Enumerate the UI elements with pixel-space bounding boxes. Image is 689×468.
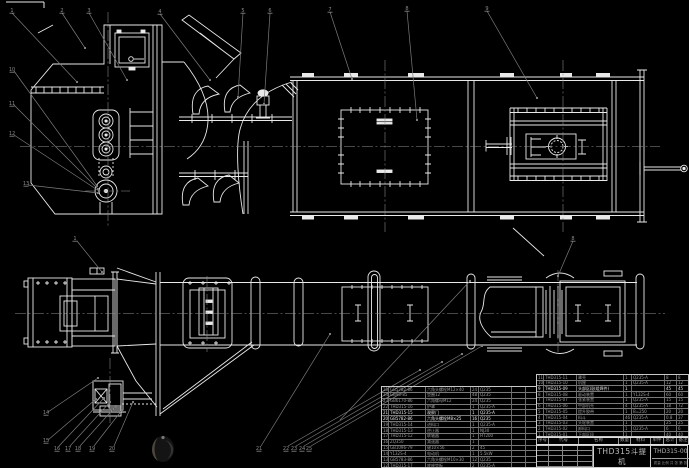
balloon-base [44,415,49,416]
elevator-buckets [182,85,250,205]
product-title: THD315斗提机 装配图 [593,446,651,467]
access-panel-plan [342,285,428,343]
leader-endpoint [126,79,128,81]
inspection-door [115,30,149,70]
balloon-base [55,451,60,452]
leader-line [487,11,537,98]
balloon-base [268,13,273,14]
cad-application-window: 1234567891011121318141516171819202122232… [0,0,689,468]
balloon-base [44,443,49,444]
leader-endpoint [84,47,86,49]
balloon-base [90,451,95,452]
leader-endpoint [237,96,239,98]
balloon-base [87,13,92,14]
leader-endpoint [351,78,353,80]
bom-cell: THD315-17 [389,463,426,468]
leader-line [407,11,417,120]
balloon-base [76,451,81,452]
bom-cell: 12 [382,463,389,468]
bom-table-right: 11THD315-11罩壳1Q235-A8810THD315-10机座1Q235… [536,374,689,437]
leader-endpoint [109,401,111,403]
leader-endpoint [115,405,117,407]
bom-cell [512,463,526,468]
balloon-base [328,12,333,13]
balloon-base [300,451,305,452]
signature-cell [563,462,578,467]
takeup-shaft [640,162,687,175]
balloon-base [405,11,410,12]
product-title-line1: THD315斗提机 [594,447,650,467]
leader-endpoint [103,397,105,399]
balloon-base [292,451,297,452]
leader-line [70,402,110,446]
balloon-base [110,451,115,452]
balloon-base [10,72,15,73]
leader-endpoint [97,377,99,379]
leader-line [62,13,85,48]
leader-endpoint [557,275,559,277]
leader-line [558,241,573,276]
inlet-section-plan [183,278,232,348]
leader-line [264,13,270,104]
leader-endpoint [101,271,103,273]
leader-endpoint [209,79,211,81]
leader-endpoint [329,333,331,335]
leader-line [261,334,330,446]
leader-line [160,14,210,80]
leader-endpoint [98,190,100,192]
leader-line [114,402,133,446]
signature-cell [578,462,593,467]
leader-line [77,241,102,272]
leader-line [48,378,98,412]
balloon-base [485,11,490,12]
title-block-footer: 质量 比例 共 张 第 张 [652,458,689,468]
boot-flange-plan [24,278,72,347]
bom-cell: 底座垫板 [426,463,471,468]
balloon-base [10,136,15,137]
balloon-base [24,186,29,187]
bom-header-row: 序号代号名称数量材料单件总计备注 [536,437,689,445]
balloon-base [257,451,262,452]
leader-endpoint [97,192,99,194]
leader-endpoint [263,103,265,105]
leader-endpoint [96,185,98,187]
balloon-base [158,14,163,15]
leader-endpoint [461,353,463,355]
balloon-base [73,241,78,242]
balloon-base [60,13,65,14]
balloon-base [571,241,576,242]
balloon-base [241,13,246,14]
leader-line [59,398,104,446]
leader-line [330,12,352,79]
leader-endpoint [76,81,78,83]
leader-line [14,105,98,189]
leader-endpoint [121,409,123,411]
drive-unit-elevation [486,108,607,181]
leader-line [48,399,96,440]
balloon-base [10,13,15,14]
head-pulley-assembly [93,110,119,214]
leader-endpoint [419,369,421,371]
leader-endpoint [481,345,483,347]
bom-cell: 2 [471,463,479,468]
head-drive-plan [480,228,625,356]
casing-flange-rings [251,271,644,351]
leader-endpoint [441,361,443,363]
leader-endpoint [536,97,538,99]
leader-endpoint [469,280,471,282]
balloon-base [66,451,71,452]
leader-endpoint [132,401,134,403]
signature-grid [537,446,593,467]
leader-endpoint [416,119,418,121]
bom-cell: Q235-A [479,463,512,468]
title-block: THD315斗提机 装配图 THD315-00 质量 比例 共 张 第 张 [536,445,688,468]
leader-line [12,13,77,82]
leader-line [14,71,97,186]
balloon-base [307,451,312,452]
signature-cell [537,462,549,467]
watermark-logo [152,436,174,462]
bom-table-left: 25GB5782-86六角头螺栓M12×4024Q23524GB95-85垫圈1… [381,386,537,468]
balloon-base [284,451,289,452]
balloon-base [10,106,15,107]
leader-line [28,185,98,193]
signature-cell [549,462,563,467]
leader-endpoint [95,398,97,400]
